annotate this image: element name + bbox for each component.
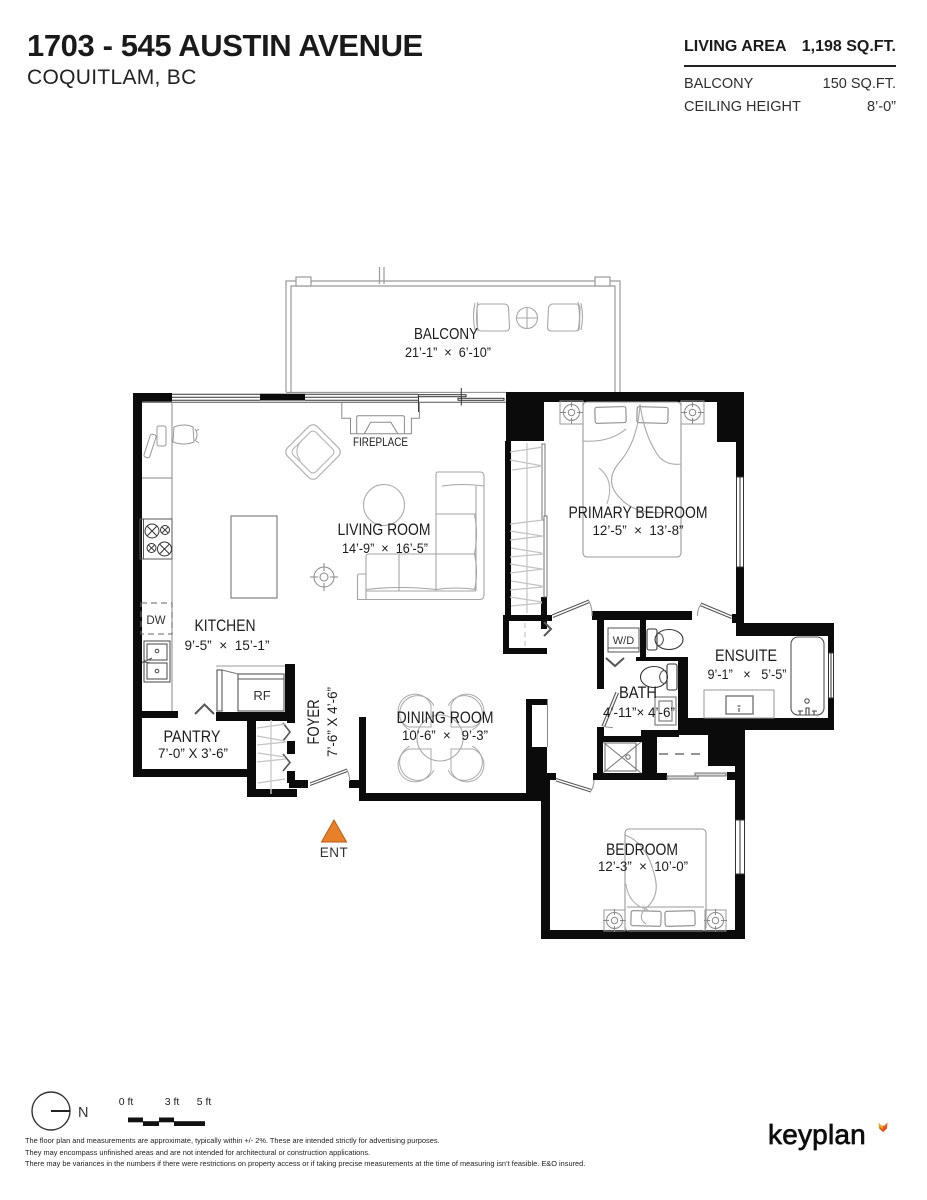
svg-text:21’-1” × 6’-10”: 21’-1” × 6’-10” xyxy=(405,344,491,360)
svg-text:DW: DW xyxy=(146,615,165,627)
svg-text:9’-1” × 5’-5”: 9’-1” × 5’-5” xyxy=(708,666,787,682)
svg-text:0 ft: 0 ft xyxy=(119,1096,134,1108)
svg-text:ENT: ENT xyxy=(320,845,349,860)
svg-text:BEDROOM: BEDROOM xyxy=(606,840,678,859)
svg-text:PRIMARY BEDROOM: PRIMARY BEDROOM xyxy=(569,503,708,522)
svg-text:14’-9” × 16’-5”: 14’-9” × 16’-5” xyxy=(342,540,428,556)
svg-text:7’-6” X 4’-6”: 7’-6” X 4’-6” xyxy=(325,687,340,757)
svg-text:12’-3” × 10’-0”: 12’-3” × 10’-0” xyxy=(598,858,688,874)
svg-text:10’-6” × 9’-3”: 10’-6” × 9’-3” xyxy=(402,727,488,743)
svg-text:W/D: W/D xyxy=(613,635,634,647)
svg-text:BATH: BATH xyxy=(619,683,657,702)
svg-text:LIVING ROOM: LIVING ROOM xyxy=(338,520,431,539)
svg-text:9’-5” × 15’-1”: 9’-5” × 15’-1” xyxy=(185,637,270,653)
svg-text:FOYER: FOYER xyxy=(304,700,323,745)
svg-text:5 ft: 5 ft xyxy=(197,1096,212,1108)
svg-text:7’-0” X 3’-6”: 7’-0” X 3’-6” xyxy=(158,745,228,761)
svg-text:N: N xyxy=(78,1105,88,1121)
svg-text:DINING ROOM: DINING ROOM xyxy=(397,708,494,727)
svg-text:4’-11”× 4’-6”: 4’-11”× 4’-6” xyxy=(603,704,675,720)
svg-text:ENSUITE: ENSUITE xyxy=(715,646,777,665)
svg-text:PANTRY: PANTRY xyxy=(164,727,221,746)
svg-text:BALCONY: BALCONY xyxy=(414,326,478,343)
svg-text:3 ft: 3 ft xyxy=(165,1096,180,1108)
svg-text:FIREPLACE: FIREPLACE xyxy=(353,437,408,449)
svg-text:RF: RF xyxy=(253,688,270,703)
svg-text:12’-5” × 13’-8”: 12’-5” × 13’-8” xyxy=(593,522,684,538)
svg-text:KITCHEN: KITCHEN xyxy=(195,616,256,635)
